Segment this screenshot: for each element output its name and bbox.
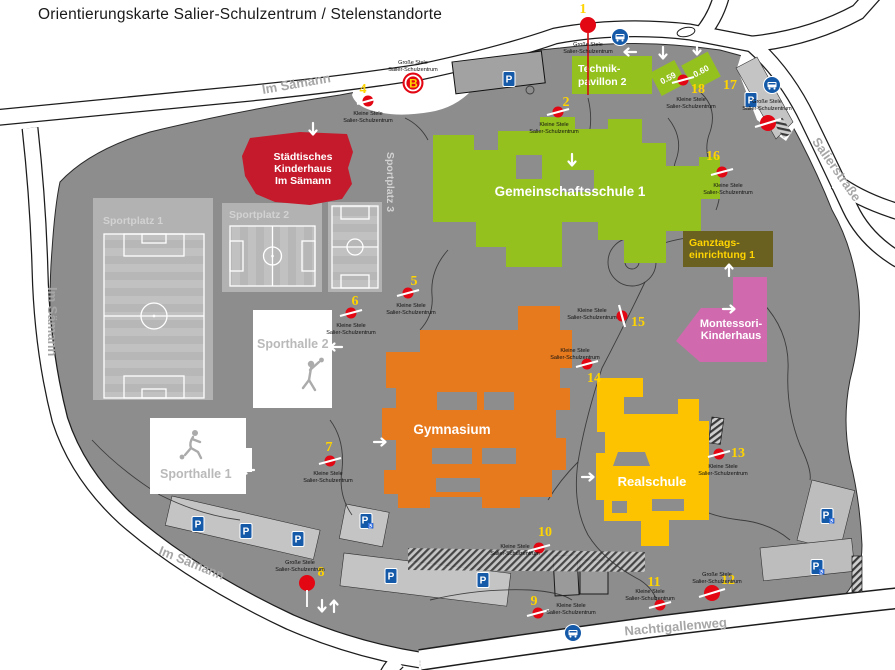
sportplatz2-label: Sportplatz 2 (229, 209, 289, 221)
svg-text:Kinderhaus: Kinderhaus (274, 163, 332, 175)
svg-text:Kleine Stele: Kleine Stele (560, 348, 589, 354)
building-ganztagseinrichtung: Ganztags- einrichtung 1 (683, 231, 773, 267)
svg-text:Kinderhaus: Kinderhaus (701, 330, 762, 342)
svg-text:♿: ♿ (368, 523, 374, 530)
svg-text:Salier-Schulzentrum: Salier-Schulzentrum (546, 610, 596, 616)
map-canvas: Im Sämann Im Sämann Im Sämann Salierstra… (0, 0, 895, 670)
kinderhaus-label: Städtisches (274, 151, 333, 163)
svg-text:Salier-Schulzentrum: Salier-Schulzentrum (550, 355, 600, 361)
svg-text:Salier-Schulzentrum: Salier-Schulzentrum (388, 67, 438, 73)
sporthalle2-label: Sporthalle 2 (257, 337, 329, 351)
svg-text:6: 6 (352, 294, 359, 309)
parking-icon: P (240, 524, 252, 539)
parking-icon: P (192, 517, 204, 532)
svg-text:P: P (480, 576, 487, 587)
realschule-label: Realschule (618, 474, 687, 489)
svg-text:13: 13 (731, 446, 745, 461)
map-screenshot: Orientierungskarte Salier-Schulzentrum /… (0, 0, 895, 670)
svg-text:Kleine Stele: Kleine Stele (676, 97, 705, 103)
parking-icon: P (503, 72, 515, 87)
svg-text:Kleine Stele: Kleine Stele (556, 603, 585, 609)
svg-text:10: 10 (538, 525, 552, 540)
svg-text:Kleine Stele: Kleine Stele (635, 589, 664, 595)
svg-text:Salier-Schulzentrum: Salier-Schulzentrum (343, 118, 393, 124)
svg-text:9: 9 (531, 594, 538, 609)
sporthalle-1: Sporthalle 1 (150, 418, 252, 494)
svg-text:17: 17 (723, 78, 737, 93)
svg-text:18: 18 (691, 82, 705, 97)
montessori-label: Montessori- (700, 318, 763, 330)
svg-text:Kleine Stele: Kleine Stele (313, 471, 342, 477)
svg-text:P: P (295, 535, 302, 546)
svg-text:16: 16 (706, 149, 720, 164)
svg-text:Große Stele: Große Stele (752, 99, 782, 105)
svg-text:Große Stele: Große Stele (285, 560, 315, 566)
gymnasium-label: Gymnasium (413, 422, 490, 437)
sportplatz-1: Sportplatz 1 (93, 198, 213, 400)
parking-disabled-icon: P♿ (811, 560, 825, 576)
svg-text:Kleine Stele: Kleine Stele (396, 303, 425, 309)
svg-text:14: 14 (587, 371, 601, 386)
svg-text:Kleine Stele: Kleine Stele (500, 544, 529, 550)
bus-stop-icon (764, 77, 781, 94)
svg-text:5: 5 (411, 274, 418, 289)
svg-text:♿: ♿ (819, 569, 825, 576)
svg-text:Salier-Schulzentrum: Salier-Schulzentrum (698, 471, 748, 477)
svg-text:P: P (243, 527, 250, 538)
svg-text:4: 4 (360, 82, 367, 97)
svg-text:Kleine Stele: Kleine Stele (539, 122, 568, 128)
svg-text:Salier-Schulzentrum: Salier-Schulzentrum (386, 310, 436, 316)
sportplatz1-label: Sportplatz 1 (103, 215, 163, 227)
bus-stop-icon (612, 29, 629, 46)
svg-text:Kleine Stele: Kleine Stele (577, 308, 606, 314)
svg-text:Salier-Schulzentrum: Salier-Schulzentrum (563, 49, 613, 55)
sporthalle1-label: Sporthalle 1 (160, 467, 232, 481)
svg-text:Im Sämann: Im Sämann (275, 175, 331, 187)
svg-text:Salier-Schulzentrum: Salier-Schulzentrum (490, 551, 540, 557)
bus-stop-icon (565, 625, 582, 642)
parking-icon: P (477, 573, 489, 588)
technikpavillon-label: Technik- (578, 63, 621, 75)
street-label-im-saemann-left: Im Sämann (45, 287, 60, 356)
svg-text:15: 15 (631, 315, 645, 330)
svg-text:7: 7 (326, 440, 333, 455)
svg-text:Salier-Schulzentrum: Salier-Schulzentrum (742, 106, 792, 112)
svg-text:Große Stele: Große Stele (573, 42, 603, 48)
svg-text:11: 11 (647, 575, 660, 590)
building-technikpavillon: Technik- pavillon 2 (572, 56, 652, 94)
svg-text:Große Stele: Große Stele (702, 572, 732, 578)
b-stele-symbol: B (409, 77, 418, 91)
building-kinderhaus: Städtisches Kinderhaus Im Sämann (242, 132, 353, 205)
svg-text:Salier-Schulzentrum: Salier-Schulzentrum (703, 190, 753, 196)
svg-text:2: 2 (563, 95, 570, 110)
svg-text:Große Stele: Große Stele (398, 60, 428, 66)
parking-icon: P (292, 532, 304, 547)
svg-text:Salier-Schulzentrum: Salier-Schulzentrum (529, 129, 579, 135)
svg-text:Kleine Stele: Kleine Stele (336, 323, 365, 329)
svg-text:Salier-Schulzentrum: Salier-Schulzentrum (692, 579, 742, 585)
svg-text:P: P (388, 572, 395, 583)
svg-text:pavillon 2: pavillon 2 (578, 76, 627, 88)
parking-disabled-icon: P♿ (360, 514, 374, 530)
svg-text:Kleine Stele: Kleine Stele (708, 464, 737, 470)
svg-text:Salier-Schulzentrum: Salier-Schulzentrum (303, 478, 353, 484)
svg-text:Salier-Schulzentrum: Salier-Schulzentrum (275, 567, 325, 573)
sportplatz-2: Sportplatz 2 (222, 203, 322, 292)
svg-text:Kleine Stele: Kleine Stele (353, 111, 382, 117)
sporthalle-2: Sporthalle 2 (253, 310, 332, 408)
svg-text:P: P (195, 520, 202, 531)
svg-text:Salier-Schulzentrum: Salier-Schulzentrum (625, 596, 675, 602)
svg-text:♿: ♿ (829, 518, 835, 525)
svg-text:einrichtung 1: einrichtung 1 (689, 249, 755, 261)
svg-text:Salier-Schulzentrum: Salier-Schulzentrum (666, 104, 716, 110)
parking-disabled-icon: P♿ (821, 509, 835, 525)
svg-text:Salier-Schulzentrum: Salier-Schulzentrum (567, 315, 617, 321)
svg-text:Kleine Stele: Kleine Stele (713, 183, 742, 189)
svg-text:1: 1 (580, 2, 587, 17)
gemeinschaftsschule-label: Gemeinschaftsschule 1 (495, 184, 646, 199)
svg-text:Salier-Schulzentrum: Salier-Schulzentrum (326, 330, 376, 336)
ganztags-label: Ganztags- (689, 237, 740, 249)
parking-icon: P (385, 569, 397, 584)
sportplatz3-label: Sportplatz 3 (384, 152, 396, 212)
svg-text:P: P (506, 75, 513, 86)
